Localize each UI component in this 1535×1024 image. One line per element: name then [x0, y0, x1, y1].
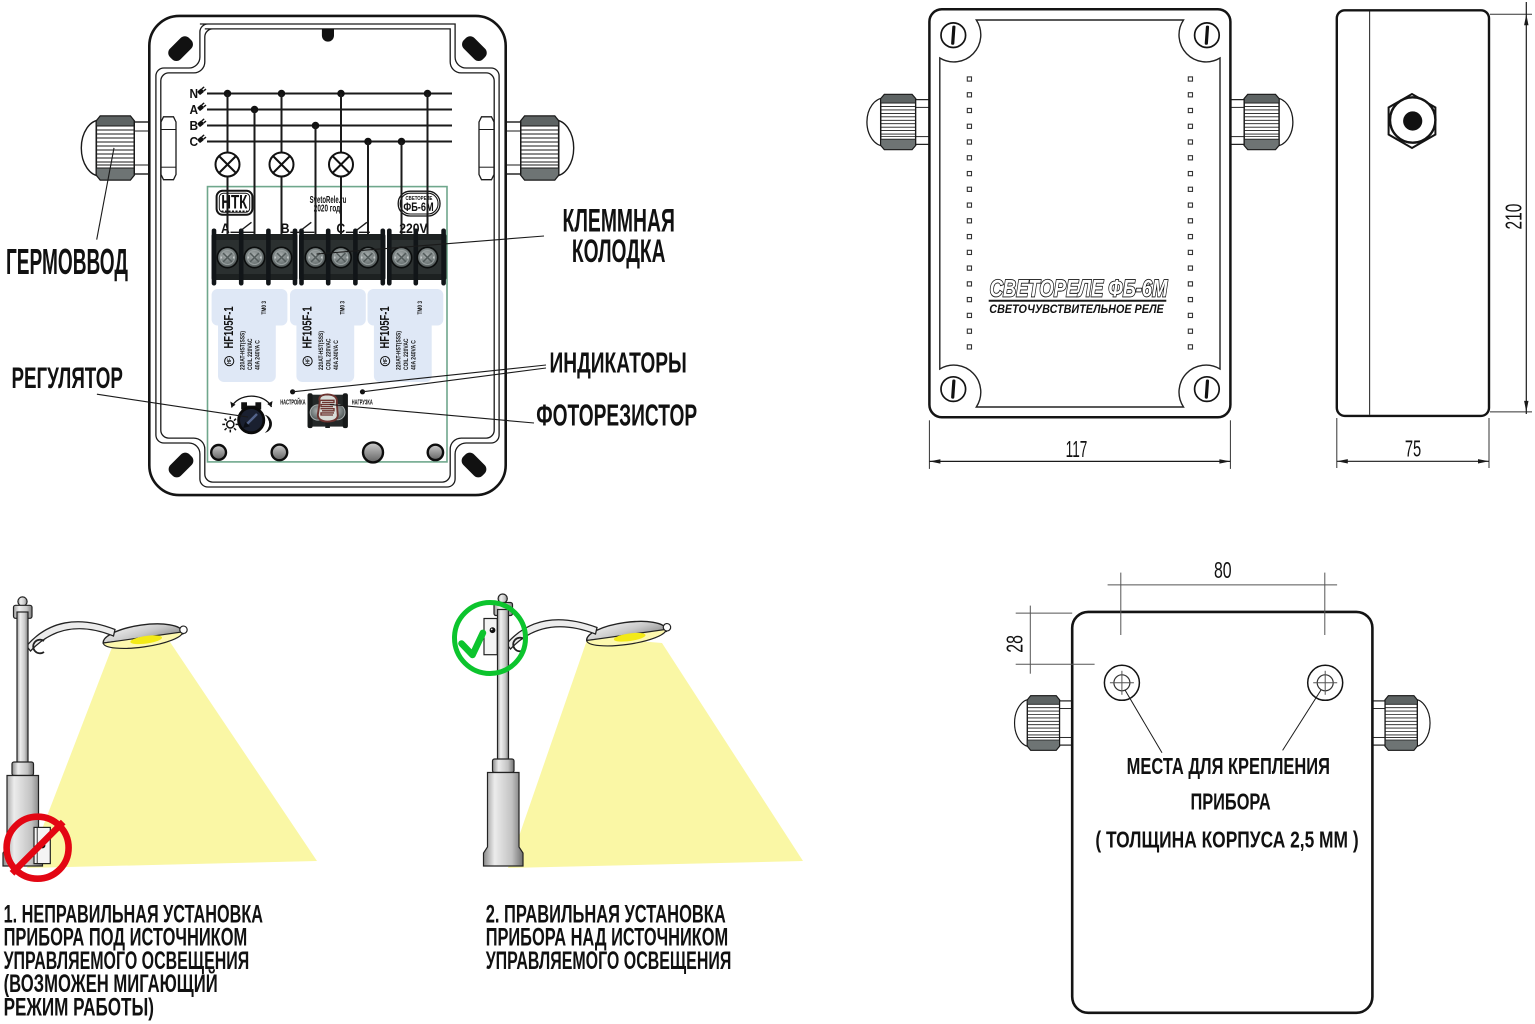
- svg-text:ФБ-6М: ФБ-6М: [403, 202, 433, 214]
- svg-text:ПРИБОРА: ПРИБОРА: [1190, 790, 1270, 815]
- svg-text:N: N: [190, 87, 199, 101]
- svg-text:117: 117: [1066, 438, 1088, 464]
- svg-text:СВЕТОРЕЛЕ: СВЕТОРЕЛЕ: [406, 195, 434, 202]
- svg-text:ИНДИКАТОРЫ: ИНДИКАТОРЫ: [550, 348, 687, 380]
- svg-text:210: 210: [1502, 204, 1528, 230]
- svg-text:ГЕРМОВВОД: ГЕРМОВВОД: [6, 243, 128, 283]
- svg-text:A: A: [190, 103, 199, 117]
- svg-text:HF105F-1: HF105F-1: [301, 306, 315, 348]
- svg-text:СВЕТОРЕЛЕ ФБ-6М: СВЕТОРЕЛЕ ФБ-6М: [990, 275, 1169, 302]
- svg-text:TM0 3: TM0 3: [340, 301, 347, 315]
- svg-text:40A 240VA C: 40A 240VA C: [411, 340, 418, 370]
- svg-text:( ТОЛЩИНА КОРПУСА 2,5 ММ ): ( ТОЛЩИНА КОРПУСА 2,5 ММ ): [1095, 827, 1358, 853]
- svg-text:HF: HF: [383, 358, 390, 364]
- svg-text:HF: HF: [227, 358, 234, 364]
- svg-text:СВЕТОЧУВСТВИТЕЛЬНОЕ РЕЛЕ: СВЕТОЧУВСТВИТЕЛЬНОЕ РЕЛЕ: [989, 304, 1164, 317]
- svg-text:220AT-HST(SSS): 220AT-HST(SSS): [396, 331, 403, 370]
- svg-text:COIL 220VAC: COIL 220VAC: [326, 338, 333, 370]
- svg-text:80: 80: [1214, 558, 1232, 584]
- svg-text:МЕСТА ДЛЯ КРЕПЛЕНИЯ: МЕСТА ДЛЯ КРЕПЛЕНИЯ: [1127, 754, 1330, 779]
- svg-text:НАСТРОЙКА: НАСТРОЙКА: [280, 397, 306, 407]
- svg-text:TM0 3: TM0 3: [418, 301, 425, 315]
- svg-text:2020 год: 2020 год: [314, 202, 341, 214]
- svg-text:COIL 220VAC: COIL 220VAC: [248, 338, 255, 370]
- svg-text:НАГРУЗКА: НАГРУЗКА: [352, 399, 373, 406]
- svg-text:HF105F-1: HF105F-1: [223, 306, 237, 348]
- svg-text:УПРАВЛЯЕМОГО ОСВЕЩЕНИЯ: УПРАВЛЯЕМОГО ОСВЕЩЕНИЯ: [486, 947, 732, 974]
- svg-text:C: C: [190, 135, 199, 149]
- svg-text:75: 75: [1405, 438, 1421, 463]
- svg-text:КОЛОДКА: КОЛОДКА: [572, 233, 666, 270]
- svg-text:B: B: [190, 119, 199, 133]
- svg-text:40A 240VA C: 40A 240VA C: [334, 340, 341, 370]
- svg-text:COIL 220VAC: COIL 220VAC: [404, 338, 411, 370]
- svg-text:ФОТОРЕЗИСТОР: ФОТОРЕЗИСТОР: [536, 399, 697, 433]
- svg-text:РЕГУЛЯТОР: РЕГУЛЯТОР: [12, 362, 123, 396]
- svg-text:220AT-HST(SSS): 220AT-HST(SSS): [319, 331, 326, 370]
- svg-text:РЕЖИМ РАБОТЫ): РЕЖИМ РАБОТЫ): [4, 993, 154, 1021]
- svg-text:40A 240VA C: 40A 240VA C: [255, 340, 262, 370]
- svg-text:HF: HF: [305, 358, 312, 364]
- svg-text:28: 28: [1003, 635, 1029, 653]
- svg-text:HF105F-1: HF105F-1: [379, 306, 393, 348]
- svg-text:НТК: НТК: [221, 192, 248, 213]
- svg-text:220AT-HST(SSS): 220AT-HST(SSS): [240, 331, 247, 370]
- svg-text:TM0 3: TM0 3: [262, 301, 269, 315]
